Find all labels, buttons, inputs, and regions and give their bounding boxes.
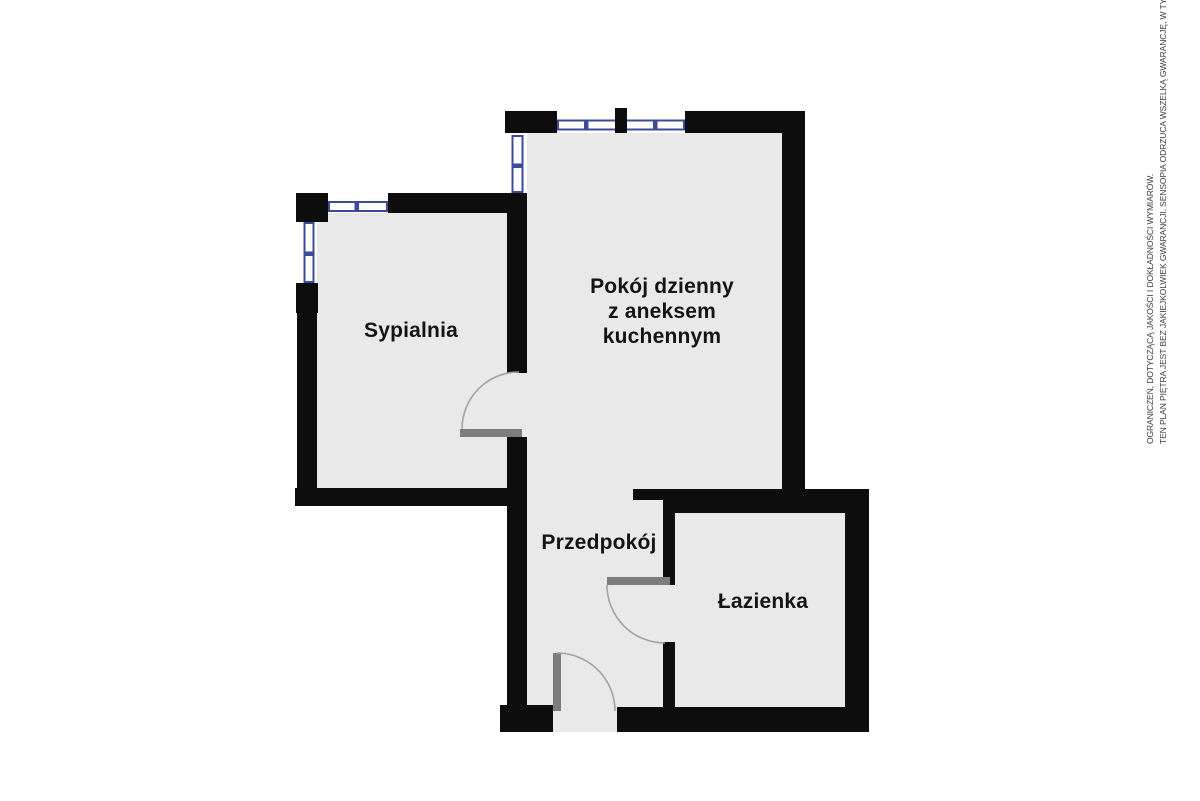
wall-living-top-left-pier [505,111,557,133]
wall-bathroom-left-lower [663,642,675,707]
window-tick [584,120,589,130]
floor-bedroom-door-gap [507,373,527,437]
wall-bathroom-left-upper [663,500,675,585]
wall-hall-left-lower [507,437,527,707]
window-tick [653,120,658,130]
wall-bathroom-top-ledge [633,489,665,500]
wall-bathroom-top [665,489,869,513]
wall-bedroom-hall-upper [507,213,527,373]
door-leaf-entrance [553,653,561,711]
floor-bathroom-door-gap [663,585,675,642]
floorplan-drawing [0,0,1200,801]
door-leaf-bedroom [460,429,522,437]
floor-entrance-gap [553,707,617,732]
room-label-sypialnia: Sypialnia [364,319,458,343]
floor-hallway [527,489,663,707]
wall-living-left-connector [505,193,527,213]
room-label-pokoj-dzienny-line2: z aneksem [608,300,716,324]
room-label-lazienka: Łazienka [718,590,808,614]
wall-bedroom-top-left-pier [296,193,328,222]
disclaimer-line1: TEN PLAN PIĘTRA JEST BEZ JAKIEJKOLWIEK G… [1157,46,1170,444]
room-label-pokoj-dzienny-line1: Pokój dzienny [590,275,734,299]
wall-bottom [617,707,869,732]
wall-bedroom-top [388,193,507,213]
wall-bottom-left-pier [500,705,553,732]
window-tick [512,164,523,169]
disclaimer-text: OGRANICZEŃ, DOTYCZĄCĄ JAKOŚCI I DOKŁADNO… [1144,46,1170,444]
room-label-przedpokoj: Przedpokój [541,531,656,555]
wall-bedroom-left [297,313,317,506]
floorplan-page: Sypialnia Pokój dzienny z aneksem kuchen… [0,0,1200,801]
wall-bedroom-left-pier [296,283,318,313]
floor-bedroom [317,213,507,488]
wall-living-right [782,111,805,513]
window-tick [355,202,360,212]
door-leaf-bathroom [607,577,670,585]
wall-window-mullion [615,108,627,133]
wall-bathroom-right [845,489,869,732]
room-label-pokoj-dzienny-line3: kuchennym [603,325,722,349]
disclaimer-line2: OGRANICZEŃ, DOTYCZĄCĄ JAKOŚCI I DOKŁADNO… [1144,46,1157,444]
window-tick [304,252,315,257]
wall-bedroom-bottom [295,488,525,506]
